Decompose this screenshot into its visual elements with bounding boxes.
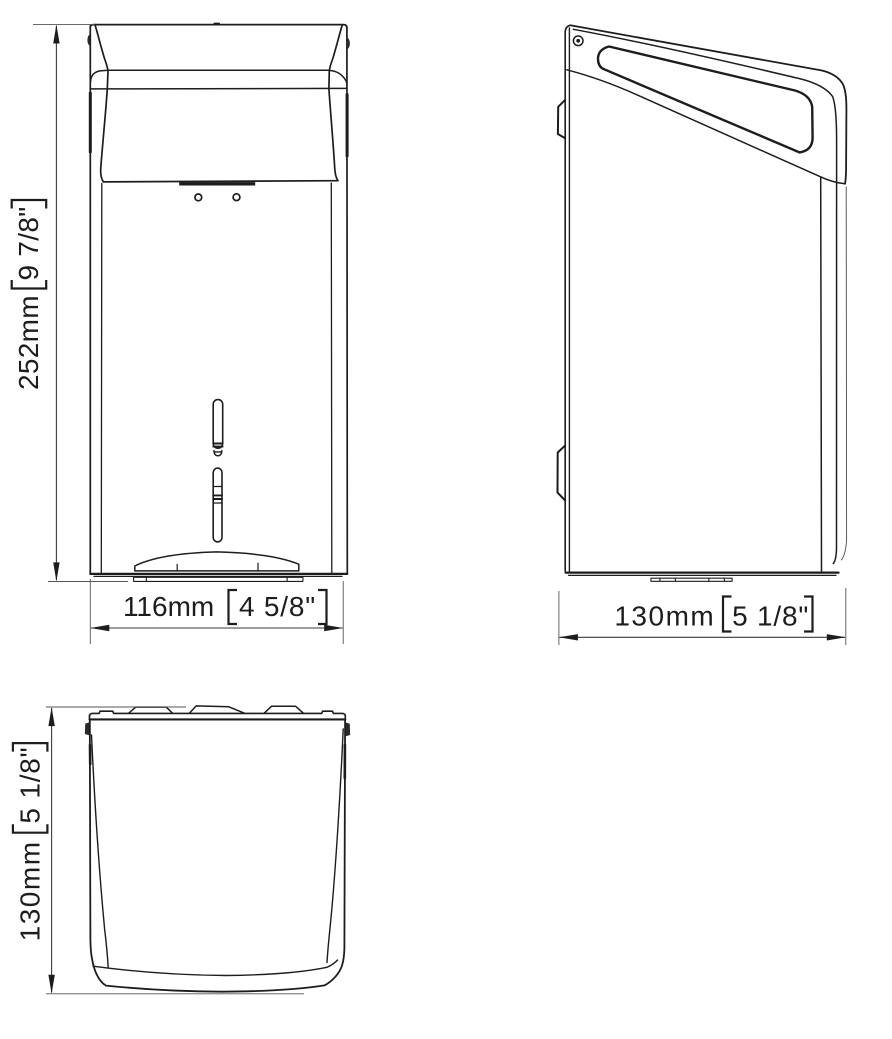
svg-text:116mm: 116mm	[123, 591, 214, 622]
svg-text:130mm: 130mm	[14, 840, 45, 941]
svg-text:5 1/8": 5 1/8"	[732, 601, 809, 632]
svg-text:252mm: 252mm	[13, 295, 44, 390]
svg-text:130mm: 130mm	[614, 601, 715, 632]
svg-text:5 1/8": 5 1/8"	[14, 747, 45, 824]
svg-text:4 5/8": 4 5/8"	[239, 591, 316, 622]
svg-text:9 7/8": 9 7/8"	[13, 206, 44, 280]
